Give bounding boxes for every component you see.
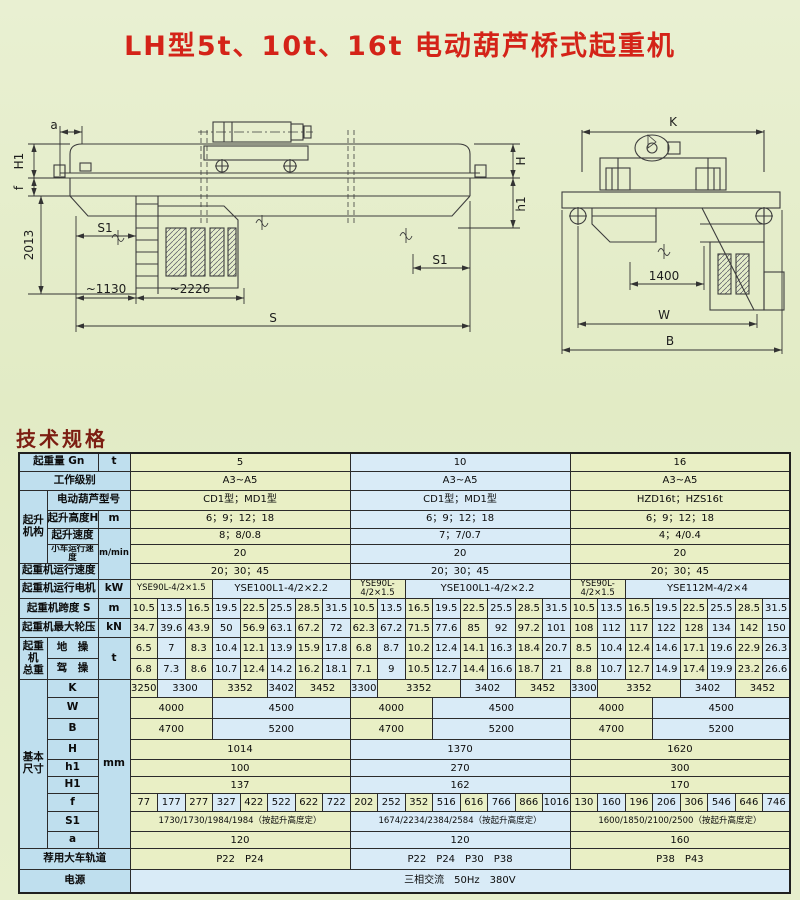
table-cell: 746 bbox=[763, 794, 791, 812]
table-cell: 1016 bbox=[543, 794, 571, 812]
row-label: 小车运行速度 bbox=[47, 544, 98, 563]
table-cell: 13.5 bbox=[158, 599, 186, 619]
table-cell: 8.7 bbox=[378, 638, 406, 659]
table-cell: YSE100L1-4/2×2.2 bbox=[405, 579, 570, 598]
table-cell: 56.9 bbox=[240, 619, 268, 638]
table-cell: 3250 bbox=[130, 680, 158, 698]
table-cell: 4700 bbox=[130, 719, 213, 740]
table-cell: 16.6 bbox=[488, 659, 516, 680]
table-cell: 10.5 bbox=[570, 599, 598, 619]
table-cell: 8；8/0.8 bbox=[130, 528, 350, 544]
table-cell: 177 bbox=[158, 794, 186, 812]
table-cell: 522 bbox=[268, 794, 296, 812]
table-cell: 4700 bbox=[570, 719, 653, 740]
row-label: H1 bbox=[47, 777, 98, 794]
unit-label: mm bbox=[98, 680, 130, 849]
table-cell: 9 bbox=[378, 659, 406, 680]
table-cell: 19.5 bbox=[213, 599, 241, 619]
table-cell: 26.3 bbox=[763, 638, 791, 659]
table-cell: 3300 bbox=[570, 680, 598, 698]
table-row: 起重量 Gnt51016 bbox=[19, 453, 790, 471]
dim-s1-right: S1 bbox=[432, 253, 447, 267]
table-cell: 6；9；12；18 bbox=[570, 510, 790, 528]
row-label: 地 操 bbox=[47, 638, 98, 659]
table-cell: 8.5 bbox=[570, 638, 598, 659]
table-cell: 31.5 bbox=[323, 599, 351, 619]
table-cell: 270 bbox=[350, 760, 570, 777]
row-label: S1 bbox=[47, 812, 98, 832]
table-cell: 10.4 bbox=[598, 638, 626, 659]
table-cell: 12.4 bbox=[625, 638, 653, 659]
table-cell: 28.5 bbox=[295, 599, 323, 619]
table-cell: 206 bbox=[653, 794, 681, 812]
table-row: W400045004000450040004500 bbox=[19, 698, 790, 719]
row-label: 起重机跨度 S bbox=[19, 599, 98, 619]
crane-end-view bbox=[562, 130, 784, 310]
table-cell: 142 bbox=[735, 619, 763, 638]
table-cell: 120 bbox=[130, 832, 350, 849]
table-cell: 101 bbox=[543, 619, 571, 638]
unit-label: kN bbox=[98, 619, 130, 638]
table-cell: 1014 bbox=[130, 740, 350, 760]
table-cell: 67.2 bbox=[295, 619, 323, 638]
table-cell: 43.9 bbox=[185, 619, 213, 638]
unit-label: t bbox=[98, 638, 130, 680]
table-cell: 25.5 bbox=[488, 599, 516, 619]
table-cell: 6；9；12；18 bbox=[130, 510, 350, 528]
table-cell: 6.8 bbox=[350, 638, 378, 659]
table-row: S11730/1730/1984/1984（按起升高度定）1674/2234/2… bbox=[19, 812, 790, 832]
table-cell: 31.5 bbox=[543, 599, 571, 619]
row-label: 电源 bbox=[19, 870, 130, 893]
table-cell: 5200 bbox=[433, 719, 571, 740]
table-cell: 202 bbox=[350, 794, 378, 812]
row-group-label: 起升 机构 bbox=[19, 490, 47, 563]
table-row: h1100270300 bbox=[19, 760, 790, 777]
table-cell: 134 bbox=[708, 619, 736, 638]
table-cell: 10.5 bbox=[350, 599, 378, 619]
table-cell: 100 bbox=[130, 760, 350, 777]
table-cell: 20；30；45 bbox=[130, 563, 350, 579]
table-cell: 20；30；45 bbox=[570, 563, 790, 579]
table-cell: 8.6 bbox=[185, 659, 213, 680]
table-cell: 1600/1850/2100/2500（按起升高度定） bbox=[570, 812, 790, 832]
table-cell: 622 bbox=[295, 794, 323, 812]
table-cell: 18.1 bbox=[323, 659, 351, 680]
table-cell: 3402 bbox=[268, 680, 296, 698]
table-cell: 25.5 bbox=[268, 599, 296, 619]
table-cell: 866 bbox=[515, 794, 543, 812]
table-row: 驾 操6.87.38.610.712.414.216.218.17.1910.5… bbox=[19, 659, 790, 680]
row-label: 起重量 Gn bbox=[19, 453, 98, 471]
table-cell: 5200 bbox=[653, 719, 791, 740]
table-cell: 19.6 bbox=[708, 638, 736, 659]
table-row: 起重机跨度 Sm10.513.516.519.522.525.528.531.5… bbox=[19, 599, 790, 619]
table-row: 起升 机构电动葫芦型号CD1型；MD1型CD1型；MD1型HZD16t；HZS1… bbox=[19, 490, 790, 510]
row-label: 起重机最大轮压 bbox=[19, 619, 98, 638]
table-cell: 63.1 bbox=[268, 619, 296, 638]
table-cell: 14.4 bbox=[460, 659, 488, 680]
table-cell: 300 bbox=[570, 760, 790, 777]
table-cell: 766 bbox=[488, 794, 516, 812]
table-row: 起重机最大轮压kN34.739.643.95056.963.167.27262.… bbox=[19, 619, 790, 638]
row-label: h1 bbox=[47, 760, 98, 777]
table-cell: 150 bbox=[763, 619, 791, 638]
table-cell: 19.9 bbox=[708, 659, 736, 680]
table-cell: 6；9；12；18 bbox=[350, 510, 570, 528]
table-cell: 50 bbox=[213, 619, 241, 638]
table-cell: 14.6 bbox=[653, 638, 681, 659]
table-cell: 722 bbox=[323, 794, 351, 812]
table-cell: 23.2 bbox=[735, 659, 763, 680]
table-cell: 6.5 bbox=[130, 638, 158, 659]
table-cell: 422 bbox=[240, 794, 268, 812]
dim-w: W bbox=[658, 308, 670, 322]
table-cell: 1674/2234/2384/2584（按起升高度定） bbox=[350, 812, 570, 832]
table-cell: 12.7 bbox=[625, 659, 653, 680]
table-cell: 160 bbox=[598, 794, 626, 812]
table-cell: 22.5 bbox=[460, 599, 488, 619]
table-cell: 17.1 bbox=[680, 638, 708, 659]
table-cell: A3~A5 bbox=[130, 471, 350, 490]
table-row: 起升速度m/min8；8/0.87；7/0.74；4/0.4 bbox=[19, 528, 790, 544]
table-cell: 19.5 bbox=[433, 599, 461, 619]
table-cell: 92 bbox=[488, 619, 516, 638]
table-cell: 196 bbox=[625, 794, 653, 812]
table-cell: 20 bbox=[570, 544, 790, 563]
table-cell: 三相交流 50Hz 380V bbox=[130, 870, 790, 893]
table-cell: 3352 bbox=[378, 680, 461, 698]
dim-2226: ~2226 bbox=[170, 282, 211, 296]
table-cell: 13.9 bbox=[268, 638, 296, 659]
table-cell: 22.5 bbox=[240, 599, 268, 619]
row-label: 工作级别 bbox=[19, 471, 130, 490]
table-cell: 7.3 bbox=[158, 659, 186, 680]
table-cell: 128 bbox=[680, 619, 708, 638]
dim-b: B bbox=[666, 334, 674, 348]
row-label: H bbox=[47, 740, 98, 760]
table-cell: 4500 bbox=[653, 698, 791, 719]
table-cell: 516 bbox=[433, 794, 461, 812]
dimension-lines bbox=[562, 132, 782, 354]
table-cell: YSE90L-4/2×1.5 bbox=[570, 579, 625, 598]
table-cell: YSE112M-4/2×4 bbox=[625, 579, 790, 598]
dimension-labels: a H1 f 2013 S1 ~1130 ~2226 S S1 H h1 bbox=[12, 118, 528, 325]
table-cell: 13.5 bbox=[598, 599, 626, 619]
table-cell: 67.2 bbox=[378, 619, 406, 638]
dim-h1-right: h1 bbox=[514, 196, 528, 211]
table-cell: 7；7/0.7 bbox=[350, 528, 570, 544]
table-cell: 71.5 bbox=[405, 619, 433, 638]
table-cell: 19.5 bbox=[653, 599, 681, 619]
table-cell: 10 bbox=[350, 453, 570, 471]
table-cell: 7.1 bbox=[350, 659, 378, 680]
table-cell: P22 P24 P30 P38 bbox=[350, 849, 570, 870]
table-cell: 1370 bbox=[350, 740, 570, 760]
table-row: H1137162170 bbox=[19, 777, 790, 794]
table-cell: 20.7 bbox=[543, 638, 571, 659]
table-cell: 122 bbox=[653, 619, 681, 638]
dim-k: K bbox=[669, 115, 678, 129]
unit-label: m bbox=[98, 599, 130, 619]
unit-label: t bbox=[98, 453, 130, 471]
table-cell: 4500 bbox=[433, 698, 571, 719]
dim-h-right: H bbox=[514, 156, 528, 165]
table-row: 起重 机 总重地 操t6.578.310.412.113.915.917.86.… bbox=[19, 638, 790, 659]
table-cell: 10.4 bbox=[213, 638, 241, 659]
page-title: LH型5t、10t、16t 电动葫芦桥式起重机 bbox=[0, 0, 800, 63]
row-label: 起重机运行电机 bbox=[19, 579, 98, 598]
side-view-drawing: a H1 f 2013 S1 ~1130 ~2226 S S1 H h1 bbox=[8, 116, 553, 368]
dimension-labels: K 1400 W B bbox=[649, 115, 680, 348]
table-cell: 16.5 bbox=[185, 599, 213, 619]
table-row: 电源三相交流 50Hz 380V bbox=[19, 870, 790, 893]
table-cell: 4700 bbox=[350, 719, 433, 740]
row-label: 起升高度H bbox=[47, 510, 98, 528]
dim-1130: ~1130 bbox=[86, 282, 127, 296]
unit-label: m bbox=[98, 510, 130, 528]
table-row: 起升高度Hm6；9；12；186；9；12；186；9；12；18 bbox=[19, 510, 790, 528]
row-label: 电动葫芦型号 bbox=[47, 490, 130, 510]
table-cell: 62.3 bbox=[350, 619, 378, 638]
table-cell: 72 bbox=[323, 619, 351, 638]
dim-f: f bbox=[12, 185, 26, 190]
table-row: 荐用大车轨道P22 P24P22 P24 P30 P38P38 P43 bbox=[19, 849, 790, 870]
table-cell: 616 bbox=[460, 794, 488, 812]
row-label: a bbox=[47, 832, 98, 849]
table-cell: HZD16t；HZS16t bbox=[570, 490, 790, 510]
table-cell: 5200 bbox=[213, 719, 351, 740]
table-cell: 16.3 bbox=[488, 638, 516, 659]
table-cell: 4；4/0.4 bbox=[570, 528, 790, 544]
table-cell: YSE90L-4/2×1.5 bbox=[350, 579, 405, 598]
table-cell: 10.7 bbox=[213, 659, 241, 680]
table-cell: 25.5 bbox=[708, 599, 736, 619]
table-cell: 18.7 bbox=[515, 659, 543, 680]
table-cell: 3452 bbox=[735, 680, 790, 698]
table-cell: 162 bbox=[350, 777, 570, 794]
row-label: K bbox=[47, 680, 98, 698]
table-cell: 4500 bbox=[213, 698, 351, 719]
technical-drawings: a H1 f 2013 S1 ~1130 ~2226 S S1 H h1 bbox=[0, 112, 800, 377]
table-cell: 21 bbox=[543, 659, 571, 680]
table-cell: 17.8 bbox=[323, 638, 351, 659]
table-cell: 3352 bbox=[598, 680, 681, 698]
table-cell: 14.9 bbox=[653, 659, 681, 680]
table-cell: 16 bbox=[570, 453, 790, 471]
table-cell: 120 bbox=[350, 832, 570, 849]
table-cell: 12.4 bbox=[433, 638, 461, 659]
table-cell: YSE100L1-4/2×2.2 bbox=[213, 579, 351, 598]
table-cell: 39.6 bbox=[158, 619, 186, 638]
table-cell: 130 bbox=[570, 794, 598, 812]
row-label: 起重机运行速度 bbox=[19, 563, 98, 579]
table-cell: 34.7 bbox=[130, 619, 158, 638]
table-cell: 16.2 bbox=[295, 659, 323, 680]
table-cell: 646 bbox=[735, 794, 763, 812]
dim-s: S bbox=[269, 311, 277, 325]
row-label: 起升速度 bbox=[47, 528, 98, 544]
table-cell: 14.2 bbox=[268, 659, 296, 680]
table-cell: 3300 bbox=[158, 680, 213, 698]
dim-s1-left: S1 bbox=[97, 221, 112, 235]
table-cell: 12.4 bbox=[240, 659, 268, 680]
table-cell: 77 bbox=[130, 794, 158, 812]
table-cell: CD1型；MD1型 bbox=[350, 490, 570, 510]
table-cell: 3452 bbox=[515, 680, 570, 698]
dim-1400: 1400 bbox=[649, 269, 680, 283]
table-cell: 10.5 bbox=[130, 599, 158, 619]
table-cell: 5 bbox=[130, 453, 350, 471]
table-cell: 3452 bbox=[295, 680, 350, 698]
table-cell: 8.8 bbox=[570, 659, 598, 680]
unit-label: m/min bbox=[98, 528, 130, 579]
row-label: 驾 操 bbox=[47, 659, 98, 680]
table-cell: 15.9 bbox=[295, 638, 323, 659]
table-row: f771772773274225226227222022523525166167… bbox=[19, 794, 790, 812]
table-row: 小车运行速度202020 bbox=[19, 544, 790, 563]
table-cell: 4000 bbox=[570, 698, 653, 719]
table-cell: 3300 bbox=[350, 680, 378, 698]
table-row: H101413701620 bbox=[19, 740, 790, 760]
table-cell: A3~A5 bbox=[350, 471, 570, 490]
table-row: 起重机运行电机kWYSE90L-4/2×1.5YSE100L1-4/2×2.2Y… bbox=[19, 579, 790, 598]
table-row: 基本 尺寸Kmm32503300335234023452330033523402… bbox=[19, 680, 790, 698]
row-label: W bbox=[47, 698, 98, 719]
row-label: 荐用大车轨道 bbox=[19, 849, 130, 870]
dim-a: a bbox=[50, 118, 57, 132]
table-cell: 108 bbox=[570, 619, 598, 638]
table-cell: 112 bbox=[598, 619, 626, 638]
table-cell: 352 bbox=[405, 794, 433, 812]
table-cell: 252 bbox=[378, 794, 406, 812]
table-cell: 277 bbox=[185, 794, 213, 812]
row-label: f bbox=[47, 794, 98, 812]
table-cell: 10.7 bbox=[598, 659, 626, 680]
table-cell: 7 bbox=[158, 638, 186, 659]
table-row: a120120160 bbox=[19, 832, 790, 849]
table-cell: 10.5 bbox=[405, 659, 433, 680]
table-cell: 4000 bbox=[350, 698, 433, 719]
table-cell: 4000 bbox=[130, 698, 213, 719]
table-row: 工作级别A3~A5A3~A5A3~A5 bbox=[19, 471, 790, 490]
table-cell: 13.5 bbox=[378, 599, 406, 619]
row-group-label: 起重 机 总重 bbox=[19, 638, 47, 680]
unit-label: kW bbox=[98, 579, 130, 598]
table-cell: 3402 bbox=[680, 680, 735, 698]
table-cell: 3352 bbox=[213, 680, 268, 698]
table-cell: 16.5 bbox=[405, 599, 433, 619]
table-cell: 28.5 bbox=[515, 599, 543, 619]
section-heading: 技术规格 bbox=[16, 423, 108, 452]
table-cell: 160 bbox=[570, 832, 790, 849]
table-cell: 14.1 bbox=[460, 638, 488, 659]
table-cell: 17.4 bbox=[680, 659, 708, 680]
table-cell: 137 bbox=[130, 777, 350, 794]
table-cell: 22.9 bbox=[735, 638, 763, 659]
table-cell: 77.6 bbox=[433, 619, 461, 638]
table-cell: 117 bbox=[625, 619, 653, 638]
table-cell: 10.2 bbox=[405, 638, 433, 659]
table-cell: 306 bbox=[680, 794, 708, 812]
table-cell: CD1型；MD1型 bbox=[130, 490, 350, 510]
table-cell: P38 P43 bbox=[570, 849, 790, 870]
table-row: B470052004700520047005200 bbox=[19, 719, 790, 740]
table-cell: 28.5 bbox=[735, 599, 763, 619]
table-cell: 20 bbox=[350, 544, 570, 563]
page: LH型5t、10t、16t 电动葫芦桥式起重机 bbox=[0, 0, 800, 900]
table-cell: 85 bbox=[460, 619, 488, 638]
table-cell: YSE90L-4/2×1.5 bbox=[130, 579, 213, 598]
table-cell: 22.5 bbox=[680, 599, 708, 619]
table-cell: 18.4 bbox=[515, 638, 543, 659]
table-cell: 20 bbox=[130, 544, 350, 563]
table-cell: 1620 bbox=[570, 740, 790, 760]
table-cell: 8.3 bbox=[185, 638, 213, 659]
table-cell: 20；30；45 bbox=[350, 563, 570, 579]
table-cell: 1730/1730/1984/1984（按起升高度定） bbox=[130, 812, 350, 832]
table-cell: 3402 bbox=[460, 680, 515, 698]
table-cell: 16.5 bbox=[625, 599, 653, 619]
table-cell: 170 bbox=[570, 777, 790, 794]
table-cell: 26.6 bbox=[763, 659, 791, 680]
table-cell: P22 P24 bbox=[130, 849, 350, 870]
table-row: 起重机运行速度20；30；4520；30；4520；30；45 bbox=[19, 563, 790, 579]
table-cell: 12.1 bbox=[240, 638, 268, 659]
table-cell: 12.7 bbox=[433, 659, 461, 680]
table-cell: 97.2 bbox=[515, 619, 543, 638]
dim-2013: 2013 bbox=[22, 230, 36, 261]
table-cell: 31.5 bbox=[763, 599, 791, 619]
row-group-label: 基本 尺寸 bbox=[19, 680, 47, 849]
table-cell: A3~A5 bbox=[570, 471, 790, 490]
table-cell: 6.8 bbox=[130, 659, 158, 680]
spec-table: 起重量 Gnt51016工作级别A3~A5A3~A5A3~A5起升 机构电动葫芦… bbox=[18, 452, 791, 894]
row-label: B bbox=[47, 719, 98, 740]
table-cell: 546 bbox=[708, 794, 736, 812]
table-cell: 327 bbox=[213, 794, 241, 812]
end-view-drawing: K 1400 W B bbox=[552, 112, 797, 367]
dim-h1-left: H1 bbox=[12, 153, 26, 170]
